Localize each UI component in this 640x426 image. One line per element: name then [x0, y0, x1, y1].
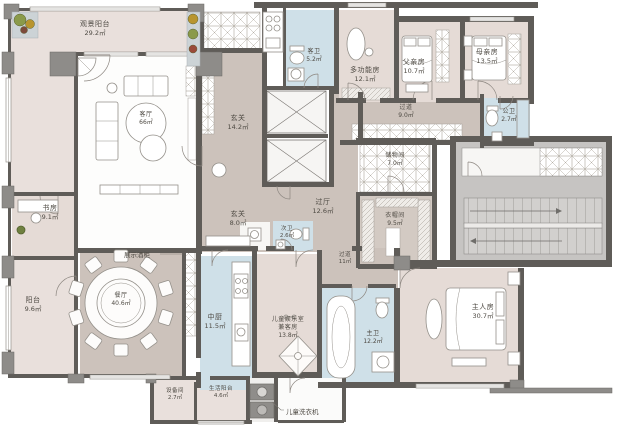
floor-plan: 观景阳台 29.2㎡ 客厅 66㎡ 玄关 14.2㎡ 客卫 5.2㎡ 多功能房 …	[0, 0, 640, 426]
staircase	[456, 142, 606, 260]
kitchen-fixtures	[232, 262, 250, 366]
floorplan-drawing	[0, 0, 640, 426]
callout-kids-washer: 儿童洗衣机	[286, 406, 319, 416]
callout-wine-cabinet: 展示酒柜	[124, 249, 150, 259]
